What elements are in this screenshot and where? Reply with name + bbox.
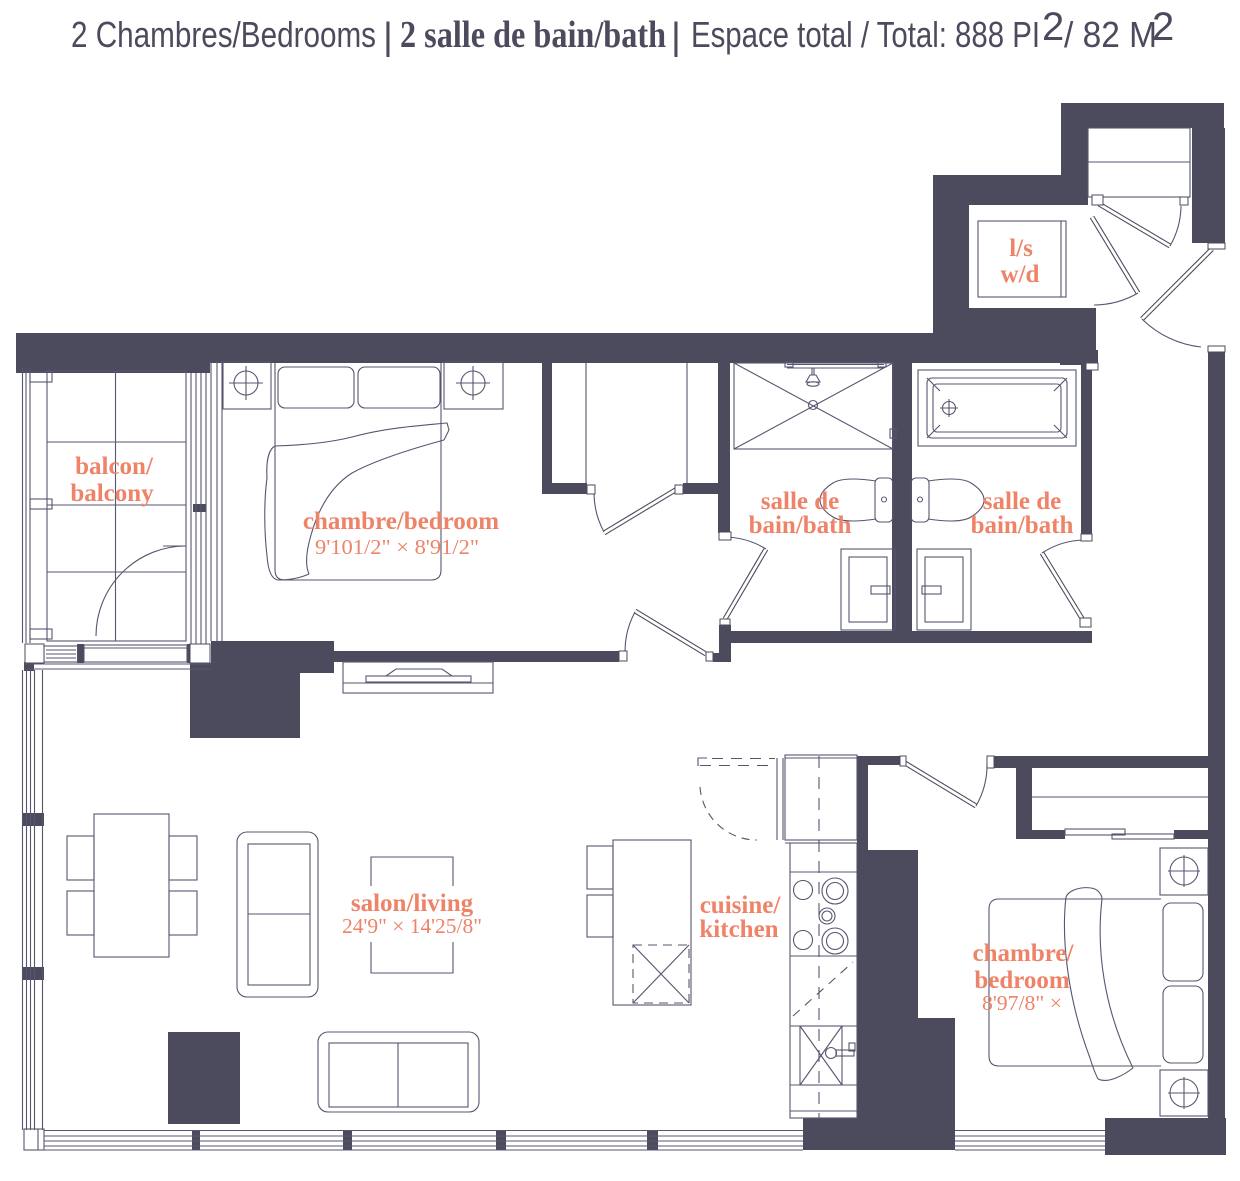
svg-text:balcon/: balcon/: [75, 453, 154, 480]
svg-text:balcony: balcony: [70, 480, 154, 507]
svg-text:9'101/2" × 8'91/2": 9'101/2" × 8'91/2": [315, 535, 479, 559]
svg-text:bain/bath: bain/bath: [971, 512, 1074, 539]
svg-text:|: |: [671, 16, 681, 58]
svg-text:chambre/bedroom: chambre/bedroom: [303, 508, 499, 535]
svg-text:Espace total / Total: 888 PI: Espace total / Total: 888 PI: [691, 14, 1040, 55]
svg-text:2: 2: [1042, 5, 1064, 49]
svg-text:8'97/8" ×: 8'97/8" ×: [982, 991, 1062, 1015]
svg-text:l/s: l/s: [1009, 235, 1033, 262]
svg-text:salle de: salle de: [983, 488, 1061, 515]
svg-text:2 salle de bain/bath: 2 salle de bain/bath: [400, 14, 666, 56]
svg-text:cuisine/: cuisine/: [700, 892, 782, 919]
svg-text:/ 82 M: / 82 M: [1064, 14, 1157, 55]
svg-text:24'9" × 14'25/8": 24'9" × 14'25/8": [342, 914, 482, 938]
svg-text:|: |: [383, 16, 393, 58]
svg-text:chambre/: chambre/: [973, 940, 1075, 967]
svg-text:salon/living: salon/living: [351, 890, 474, 917]
svg-text:salle de: salle de: [761, 488, 839, 515]
svg-text:2 Chambres/Bedrooms: 2 Chambres/Bedrooms: [71, 14, 376, 55]
svg-text:2: 2: [1152, 5, 1174, 49]
svg-text:bedroom: bedroom: [974, 967, 1070, 994]
svg-text:w/d: w/d: [1001, 261, 1040, 288]
svg-text:bain/bath: bain/bath: [749, 512, 852, 539]
svg-text:kitchen: kitchen: [699, 916, 778, 943]
